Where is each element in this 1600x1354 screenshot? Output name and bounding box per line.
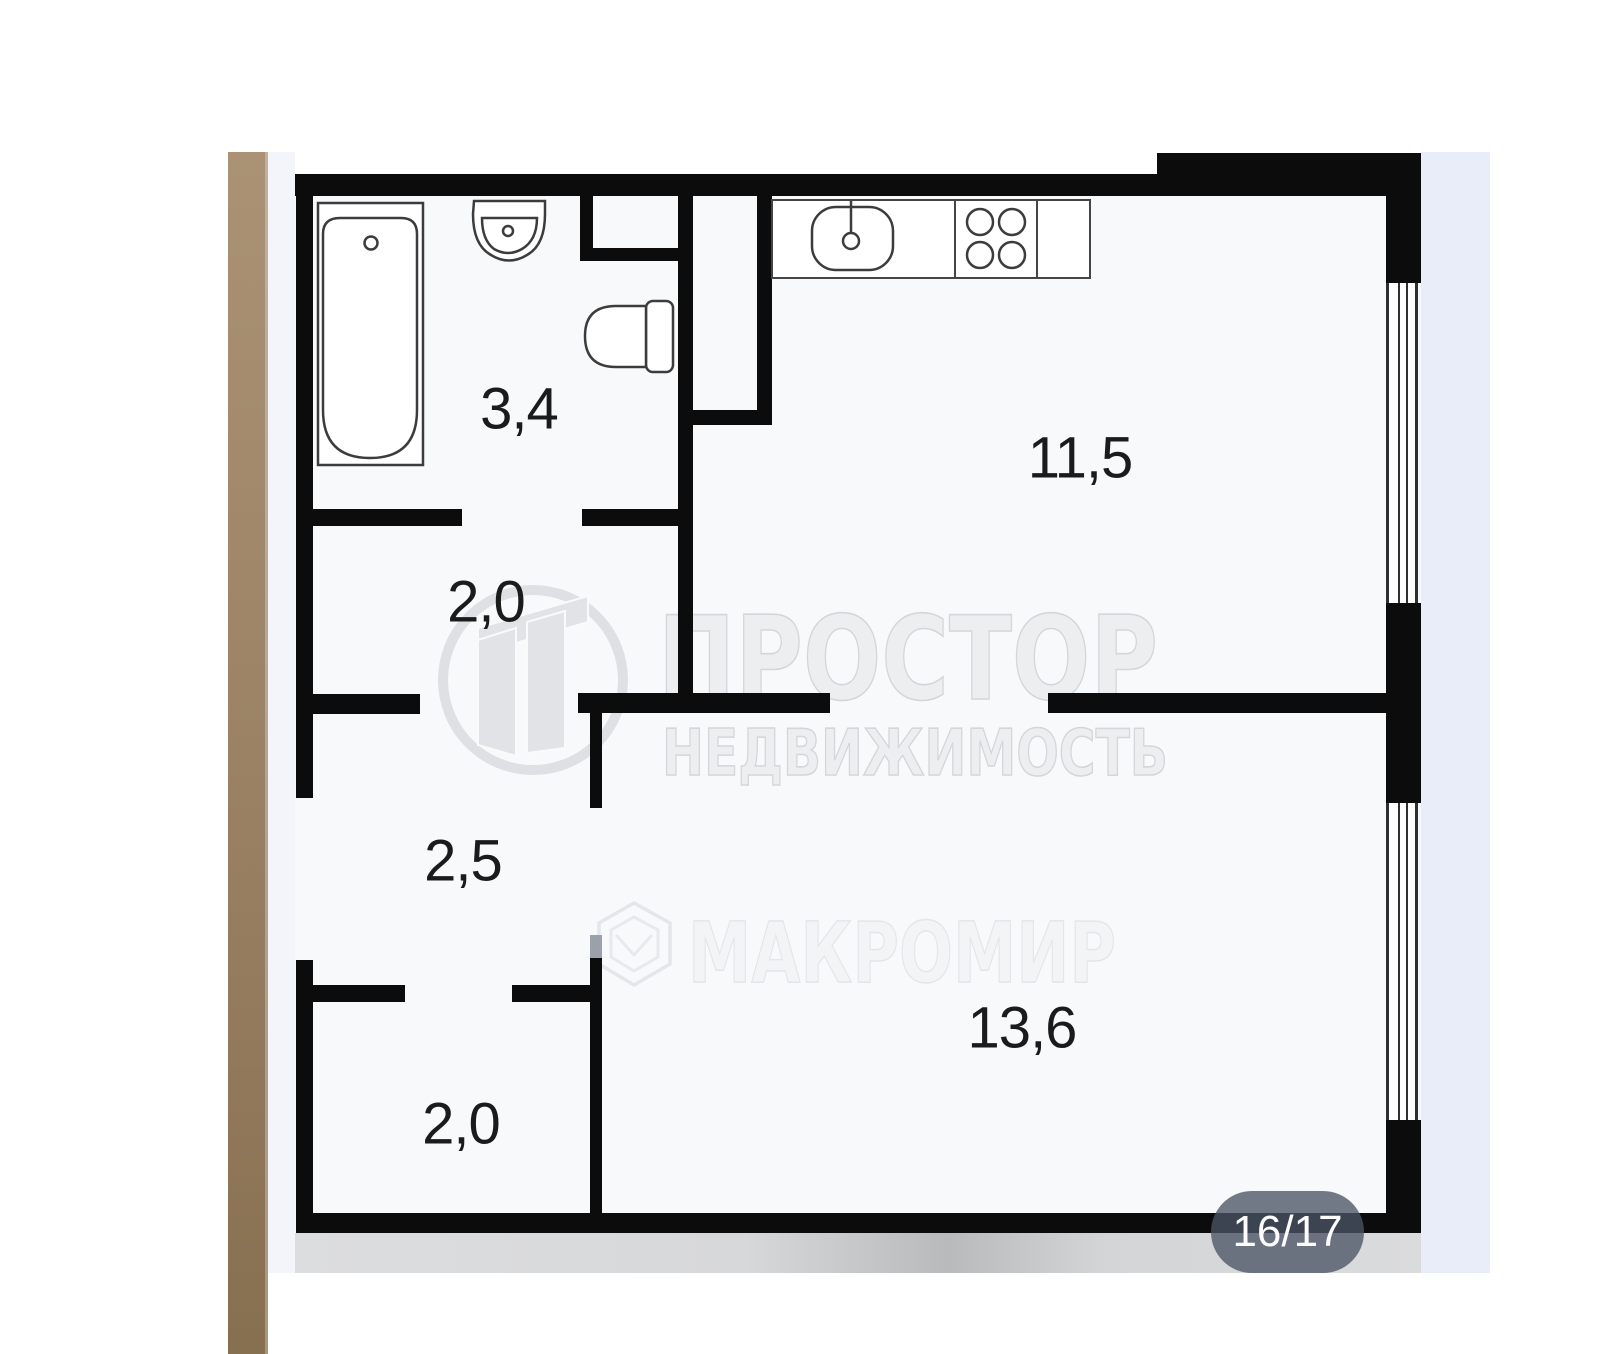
room-area-label-hallway-lower: 2,0 <box>422 1091 500 1158</box>
gallery-page-indicator: 16/17 <box>1211 1191 1364 1273</box>
toilet <box>585 301 673 372</box>
fixtures-layer <box>0 0 1600 1354</box>
room-area-label-hallway-upper: 2,0 <box>447 569 525 636</box>
room-area-label-bathroom: 3,4 <box>480 376 558 443</box>
bathtub <box>318 203 423 465</box>
bathroom-sink <box>473 201 545 261</box>
room-area-label-kitchen: 11,5 <box>1028 425 1133 492</box>
kitchen-sink <box>812 201 893 270</box>
room-area-label-living-room: 13,6 <box>968 995 1077 1062</box>
screenshot-root: ПРОСТОР НЕДВИЖИМОСТЬ МАКРОМИР <box>0 0 1600 1354</box>
room-area-label-hallway-middle: 2,5 <box>424 828 502 895</box>
